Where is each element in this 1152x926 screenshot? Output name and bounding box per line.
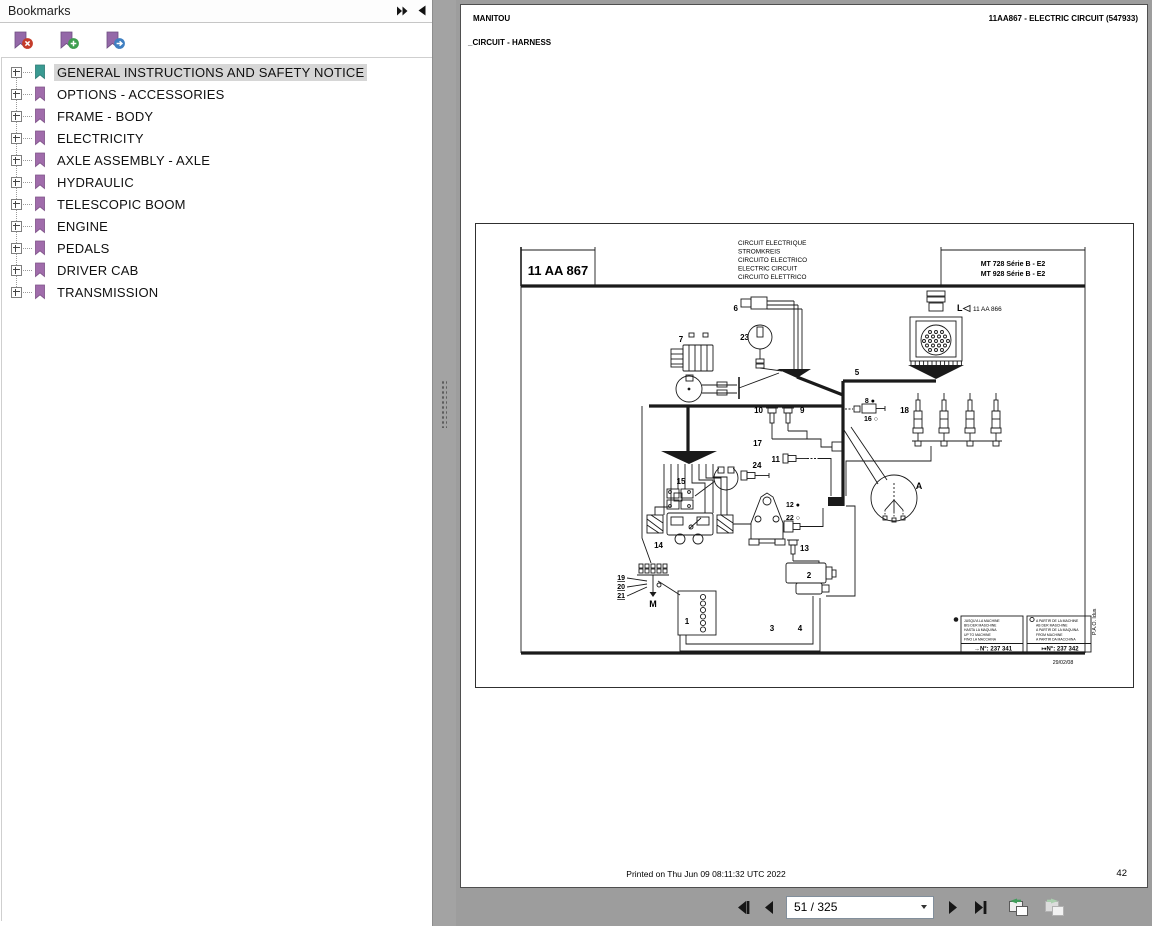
- expand-plus-icon[interactable]: [11, 133, 22, 144]
- goto-bookmark-button[interactable]: [104, 30, 126, 51]
- part-label-11: 11: [772, 455, 781, 464]
- previous-view-button[interactable]: [1006, 897, 1030, 918]
- callout-label-a: A: [916, 481, 923, 491]
- bookmark-item[interactable]: DRIVER CAB: [2, 259, 432, 281]
- diagram-title-line: STROMKREIS: [738, 249, 780, 256]
- expand-plus-icon[interactable]: [11, 111, 22, 122]
- part-label-16: 16 ○: [864, 416, 878, 423]
- page-footer-number: 42: [1116, 868, 1127, 879]
- bookmark-icon: [34, 152, 46, 168]
- part-label-10: 10: [754, 406, 763, 415]
- component-2-starter: 2: [786, 563, 836, 594]
- bookmark-label[interactable]: TELESCOPIC BOOM: [54, 196, 189, 213]
- bookmark-icon: [34, 108, 46, 124]
- bookmarks-panel-title: Bookmarks: [8, 4, 71, 18]
- connector-l-label: L: [957, 303, 963, 313]
- bookmark-label[interactable]: GENERAL INSTRUCTIONS AND SAFETY NOTICE: [54, 64, 367, 81]
- page-navigation-bar: 51 / 325: [456, 888, 1152, 926]
- bookmark-item[interactable]: ENGINE: [2, 215, 432, 237]
- document-area: MANITOU 11AA867 - ELECTRIC CIRCUIT (5479…: [456, 0, 1152, 926]
- expand-plus-icon[interactable]: [11, 221, 22, 232]
- diagram-title-line: CIRCUIT ELECTRIQUE: [738, 240, 806, 247]
- part-label-2: 2: [807, 571, 812, 580]
- part-label-5: 5: [855, 368, 860, 377]
- bookmarks-toolbar: [0, 23, 432, 57]
- previous-page-button[interactable]: [762, 899, 776, 916]
- part-label-12: 12 ●: [786, 502, 800, 509]
- bookmarks-panel: Bookmarks: [0, 0, 432, 926]
- bookmark-item[interactable]: ELECTRICITY: [2, 127, 432, 149]
- diagram-title-line: CIRCUITO ELETTRICO: [738, 274, 806, 281]
- part-label-24: 24: [753, 461, 762, 470]
- bookmark-label[interactable]: HYDRAULIC: [54, 174, 137, 191]
- bookmark-icon: [34, 284, 46, 300]
- part-label-3: 3: [770, 624, 775, 633]
- bookmark-item[interactable]: HYDRAULIC: [2, 171, 432, 193]
- pdf-page: MANITOU 11AA867 - ELECTRIC CIRCUIT (5479…: [460, 4, 1148, 888]
- component-18-glow-plugs: 18: [846, 393, 1002, 496]
- legend-line: FROM MACHINE: [1036, 633, 1063, 637]
- next-view-button[interactable]: [1042, 897, 1066, 918]
- remove-bookmark-button[interactable]: [12, 30, 34, 51]
- bookmark-icon: [34, 218, 46, 234]
- legend-line: UP TO MACHINE: [964, 633, 991, 637]
- diagram-date: 29/02/08: [1053, 660, 1074, 666]
- component-11-sensor: 11: [772, 454, 831, 496]
- expand-plus-icon[interactable]: [11, 287, 22, 298]
- callout-a: A: [844, 427, 923, 522]
- component-m-terminal: M 19 20 21: [617, 564, 680, 609]
- bookmark-item[interactable]: TELESCOPIC BOOM: [2, 193, 432, 215]
- diagram-side-note: P.A.O. Idus: [1092, 608, 1098, 635]
- page-header-right: 11AA867 - ELECTRIC CIRCUIT (547933): [989, 14, 1138, 23]
- legend-line: AB DER MASCHINE: [1036, 624, 1068, 628]
- last-page-button[interactable]: [972, 899, 990, 916]
- bookmark-icon: [34, 240, 46, 256]
- page-subtitle: _CIRCUIT - HARNESS: [468, 38, 551, 47]
- legend-line: FINO LA MACCHINA: [964, 637, 997, 641]
- expand-plus-icon[interactable]: [11, 199, 22, 210]
- bookmark-item[interactable]: GENERAL INSTRUCTIONS AND SAFETY NOTICE: [2, 61, 432, 83]
- ground-label-m: M: [649, 599, 657, 609]
- connector-l-11aa866: L 11 AA 866: [910, 291, 1002, 365]
- part-label-14: 14: [654, 541, 663, 550]
- legend-from-machine: A PARTIR DE LA MACHINE AB DER MASCHINE A…: [1027, 616, 1091, 653]
- bookmark-icon: [34, 174, 46, 190]
- first-page-button[interactable]: [734, 899, 752, 916]
- add-bookmark-button[interactable]: [58, 30, 80, 51]
- bookmark-label[interactable]: DRIVER CAB: [54, 262, 141, 279]
- legend-number: →N°: 237 341: [974, 647, 1013, 653]
- bookmark-item[interactable]: OPTIONS - ACCESSORIES: [2, 83, 432, 105]
- component-8-16-fuse: 8 ● 16 ○: [845, 398, 885, 423]
- bookmark-item[interactable]: AXLE ASSEMBLY - AXLE: [2, 149, 432, 171]
- part-label-1: 1: [685, 617, 690, 626]
- bookmark-label[interactable]: OPTIONS - ACCESSORIES: [54, 86, 227, 103]
- bookmark-label[interactable]: ENGINE: [54, 218, 111, 235]
- component-1-battery: 1 3 4: [678, 591, 820, 651]
- panel-splitter[interactable]: [432, 0, 457, 926]
- bookmark-label[interactable]: FRAME - BODY: [54, 108, 156, 125]
- expand-plus-icon[interactable]: [11, 89, 22, 100]
- expand-plus-icon[interactable]: [11, 155, 22, 166]
- connector-l-ref: 11 AA 866: [973, 306, 1002, 313]
- next-page-button[interactable]: [946, 899, 960, 916]
- app-window: Bookmarks: [0, 0, 1152, 926]
- bookmark-label[interactable]: TRANSMISSION: [54, 284, 161, 301]
- expand-plus-icon[interactable]: [11, 243, 22, 254]
- part-label-7: 7: [679, 335, 684, 344]
- part-label-21: 21: [617, 593, 625, 600]
- part-label-20: 20: [617, 584, 625, 591]
- legend-line: HASTA LA MAQUINA: [964, 628, 997, 632]
- bookmark-icon: [34, 130, 46, 146]
- components-10-9-sensors: 10 9 17: [753, 406, 843, 451]
- collapse-panel-icon[interactable]: [418, 5, 426, 16]
- diagram-model-line: MT 928 Série B - E2: [981, 271, 1046, 278]
- diagram-title-line: ELECTRIC CIRCUIT: [738, 266, 797, 273]
- diagram-ref-box: 11 AA 867: [528, 263, 588, 278]
- component-13-sensor: 13: [787, 540, 819, 563]
- page-number-value[interactable]: 51 / 325: [787, 900, 837, 914]
- combobox-dropdown-icon[interactable]: [921, 905, 927, 909]
- printed-timestamp: Printed on Thu Jun 09 08:11:32 UTC 2022: [546, 869, 866, 879]
- bookmark-item[interactable]: FRAME - BODY: [2, 105, 432, 127]
- legend-number: ↦N°: 237 342: [1041, 646, 1079, 653]
- expand-plus-icon[interactable]: [11, 265, 22, 276]
- expand-panes-icon[interactable]: [396, 6, 409, 16]
- expand-plus-icon[interactable]: [11, 177, 22, 188]
- bookmark-label[interactable]: AXLE ASSEMBLY - AXLE: [54, 152, 213, 169]
- component-12-22-sensor: 12 ● 22 ○: [784, 502, 823, 532]
- legend-up-to-machine: JUSQU'A LA MACHINE BIS DER MASCHINE HAST…: [954, 616, 1023, 653]
- bookmark-item[interactable]: PEDALS: [2, 237, 432, 259]
- component-7-alternator: 7: [671, 333, 779, 402]
- part-label-19: 19: [617, 575, 625, 582]
- bookmark-icon: [34, 262, 46, 278]
- bookmark-item[interactable]: TRANSMISSION: [2, 281, 432, 303]
- bookmarks-tree: GENERAL INSTRUCTIONS AND SAFETY NOTICE O…: [1, 57, 432, 921]
- legend-line: JUSQU'A LA MACHINE: [964, 619, 1000, 623]
- page-header-left: MANITOU: [473, 14, 510, 23]
- bookmark-label[interactable]: ELECTRICITY: [54, 130, 147, 147]
- splitter-grip-icon[interactable]: [441, 380, 447, 428]
- part-label-4: 4: [798, 624, 803, 633]
- legend-line: A PARTIR DE LA MAQUINA: [1036, 628, 1079, 632]
- bookmark-label[interactable]: PEDALS: [54, 240, 113, 257]
- component-14-assembly: 14: [647, 513, 751, 550]
- bookmark-icon: [34, 64, 46, 80]
- wiring-diagram: 11 AA 867 CIRCUIT ELECTRIQUE STROMKREIS …: [475, 223, 1134, 688]
- diagram-title-line: CIRCUITO ELECTRICO: [738, 257, 807, 264]
- legend-line: A PARTIR DA MACCHINA: [1036, 637, 1076, 641]
- component-23-gauge: 23: [740, 325, 782, 371]
- bookmark-icon: [34, 86, 46, 102]
- legend-line: A PARTIR DE LA MACHINE: [1036, 619, 1079, 623]
- diagram-model-line: MT 728 Série B - E2: [981, 261, 1046, 268]
- component-bracket: [749, 493, 785, 545]
- part-label-9: 9: [800, 406, 805, 415]
- part-label-13: 13: [800, 544, 809, 553]
- page-number-combobox[interactable]: 51 / 325: [786, 896, 934, 919]
- bookmarks-panel-header: Bookmarks: [0, 0, 432, 23]
- legend-line: BIS DER MASCHINE: [964, 624, 997, 628]
- part-label-6: 6: [734, 304, 739, 313]
- expand-plus-icon[interactable]: [11, 67, 22, 78]
- bookmark-icon: [34, 196, 46, 212]
- part-label-18: 18: [900, 406, 909, 415]
- diagram-frame: 11 AA 867 CIRCUIT ELECTRIQUE STROMKREIS …: [476, 224, 1134, 688]
- part-label-17: 17: [753, 439, 762, 448]
